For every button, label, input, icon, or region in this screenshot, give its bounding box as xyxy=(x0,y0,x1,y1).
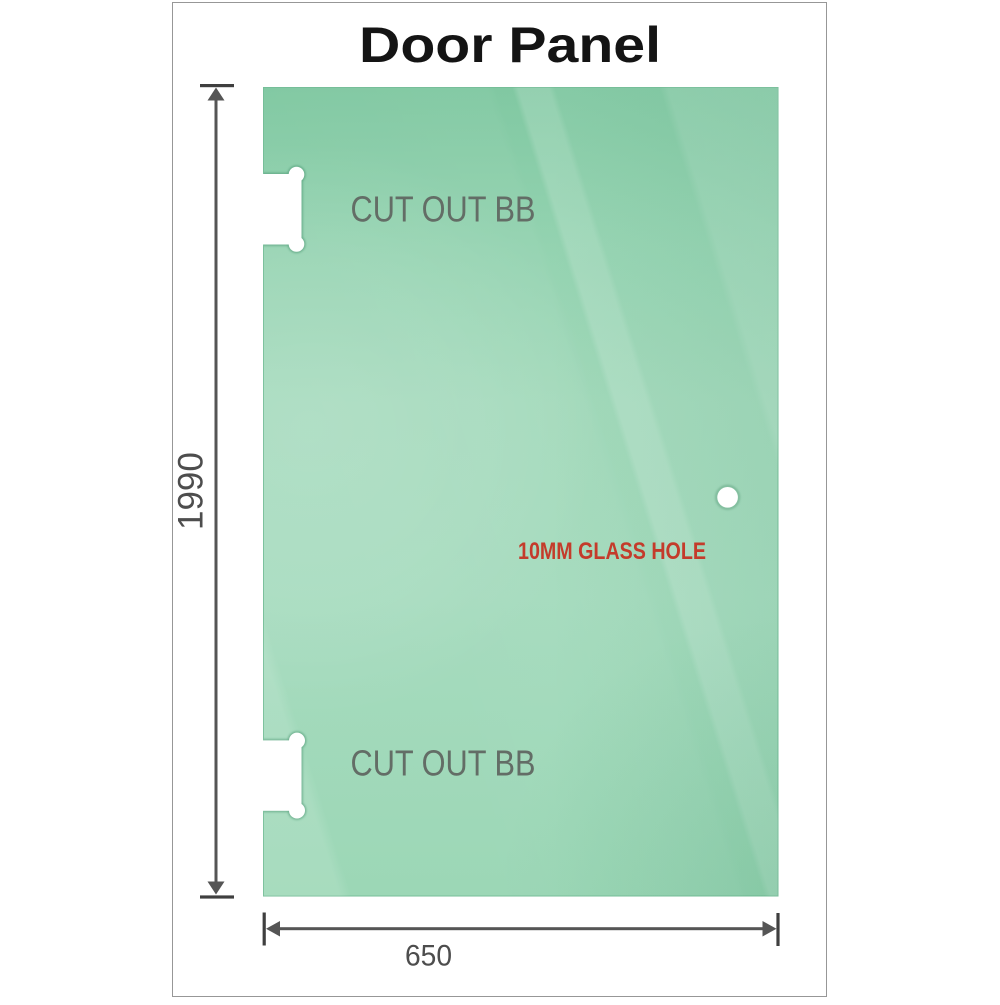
svg-text:10MM GLASS HOLE: 10MM GLASS HOLE xyxy=(518,538,706,565)
svg-text:CUT OUT BB: CUT OUT BB xyxy=(351,743,536,784)
svg-text:CUT OUT BB: CUT OUT BB xyxy=(351,189,536,230)
svg-text:650: 650 xyxy=(405,940,452,973)
svg-text:Door Panel: Door Panel xyxy=(359,17,661,73)
svg-text:1990: 1990 xyxy=(172,452,211,530)
